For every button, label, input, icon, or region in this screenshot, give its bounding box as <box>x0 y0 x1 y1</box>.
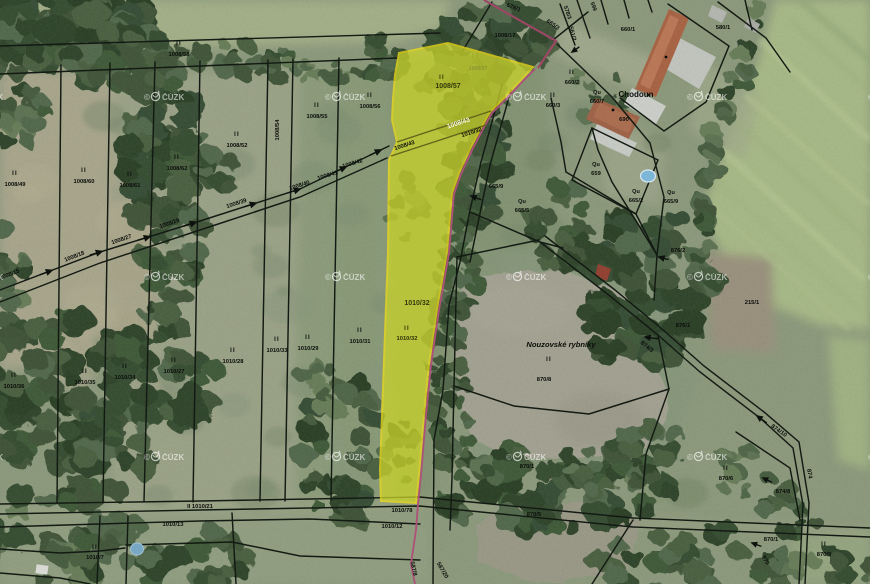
svg-text:©: © <box>144 453 150 462</box>
svg-text:1010/7: 1010/7 <box>86 555 104 561</box>
svg-text:ČÚZK: ČÚZK <box>0 93 3 102</box>
svg-text:660/3: 660/3 <box>546 103 561 109</box>
svg-text:Qu: Qu <box>667 190 675 196</box>
svg-text:1010/78: 1010/78 <box>392 508 414 514</box>
svg-text:1010/27: 1010/27 <box>164 369 185 375</box>
svg-text:690: 690 <box>619 117 629 123</box>
svg-text:II: II <box>92 545 98 551</box>
svg-text:ČÚZK: ČÚZK <box>705 453 727 462</box>
svg-text:1008/56: 1008/56 <box>360 104 382 110</box>
svg-text:1008/61: 1008/61 <box>120 183 142 189</box>
svg-text:876/2: 876/2 <box>671 248 686 254</box>
svg-text:870/6: 870/6 <box>719 476 734 482</box>
svg-text:1008/57: 1008/57 <box>435 83 460 90</box>
svg-text:Qu: Qu <box>518 199 526 205</box>
svg-text:665/5: 665/5 <box>515 208 530 214</box>
svg-text:©: © <box>325 93 331 102</box>
svg-text:870/5: 870/5 <box>527 512 542 518</box>
svg-text:1008/17: 1008/17 <box>495 33 516 39</box>
svg-text:1010/32: 1010/32 <box>397 336 418 342</box>
svg-text:870/9: 870/9 <box>817 552 832 558</box>
svg-text:580/1: 580/1 <box>716 25 731 31</box>
svg-text:660/7: 660/7 <box>590 99 605 105</box>
svg-text:ČÚZK: ČÚZK <box>0 453 3 462</box>
svg-text:©: © <box>506 453 512 462</box>
svg-text:1008/62: 1008/62 <box>167 166 188 172</box>
svg-text:ČÚZK: ČÚZK <box>705 273 727 282</box>
svg-text:II 1010/21: II 1010/21 <box>187 504 214 510</box>
svg-text:1010/29: 1010/29 <box>298 346 320 352</box>
svg-text:II: II <box>11 373 17 379</box>
svg-text:870/8: 870/8 <box>537 377 552 383</box>
svg-text:II: II <box>127 172 133 178</box>
svg-text:Nouzovské rybníky: Nouzovské rybníky <box>526 340 596 349</box>
svg-text:ČÚZK: ČÚZK <box>524 273 546 282</box>
svg-text:II: II <box>550 93 556 99</box>
svg-text:II: II <box>314 103 320 109</box>
svg-text:870/1: 870/1 <box>520 464 535 470</box>
svg-text:II: II <box>569 70 575 76</box>
svg-text:II: II <box>122 364 128 370</box>
svg-text:II: II <box>234 132 240 138</box>
svg-text:1010/28: 1010/28 <box>223 359 245 365</box>
svg-text:II: II <box>274 337 280 343</box>
svg-text:II: II <box>546 357 552 363</box>
svg-text:1010/12: 1010/12 <box>382 524 403 530</box>
svg-text:Qu: Qu <box>632 189 640 195</box>
svg-text:II: II <box>723 466 729 472</box>
svg-text:II: II <box>82 369 88 375</box>
svg-text:ČÚZK: ČÚZK <box>705 93 727 102</box>
svg-text:659: 659 <box>591 171 601 177</box>
svg-text:1008/49: 1008/49 <box>5 182 27 188</box>
svg-text:II: II <box>357 328 363 334</box>
svg-text:665/9: 665/9 <box>489 184 504 190</box>
svg-text:II: II <box>821 542 827 548</box>
svg-text:©: © <box>506 93 512 102</box>
svg-text:1010/36: 1010/36 <box>4 384 26 390</box>
svg-text:II: II <box>176 41 182 47</box>
svg-text:1008/57: 1008/57 <box>469 66 488 72</box>
svg-text:1008/60: 1008/60 <box>74 179 95 185</box>
svg-text:ČÚZK: ČÚZK <box>343 453 365 462</box>
svg-text:II: II <box>367 93 373 99</box>
svg-text:1008/54: 1008/54 <box>275 119 281 141</box>
svg-text:ČÚZK: ČÚZK <box>343 93 365 102</box>
svg-text:ČÚZK: ČÚZK <box>162 93 184 102</box>
svg-text:1010/35: 1010/35 <box>75 380 97 386</box>
svg-text:ČÚZK: ČÚZK <box>0 273 3 282</box>
svg-text:660/1: 660/1 <box>621 27 636 33</box>
svg-text:©: © <box>144 93 150 102</box>
svg-text:©: © <box>144 273 150 282</box>
svg-text:©: © <box>506 273 512 282</box>
svg-text:665/9: 665/9 <box>664 199 679 205</box>
svg-text:876/1: 876/1 <box>676 323 691 329</box>
svg-text:©: © <box>687 453 693 462</box>
svg-text:©: © <box>687 93 693 102</box>
svg-text:II: II <box>174 155 180 161</box>
svg-text:1010/34: 1010/34 <box>115 375 137 381</box>
svg-text:II: II <box>305 335 311 341</box>
svg-text:ČÚZK: ČÚZK <box>162 273 184 282</box>
svg-text:II: II <box>12 171 18 177</box>
svg-text:1010/13: 1010/13 <box>163 522 185 528</box>
svg-text:©: © <box>325 453 331 462</box>
svg-text:ČÚZK: ČÚZK <box>524 453 546 462</box>
svg-text:ČÚZK: ČÚZK <box>524 93 546 102</box>
svg-text:1010/33: 1010/33 <box>267 348 289 354</box>
svg-text:660/2: 660/2 <box>565 80 580 86</box>
svg-text:©: © <box>687 273 693 282</box>
svg-text:215/1: 215/1 <box>745 300 760 306</box>
svg-text:Qu: Qu <box>592 162 600 168</box>
svg-text:874/8: 874/8 <box>776 489 791 495</box>
svg-text:II: II <box>439 75 445 81</box>
svg-text:ČÚZK: ČÚZK <box>162 453 184 462</box>
svg-text:1008/52: 1008/52 <box>227 143 248 149</box>
svg-text:Qu: Qu <box>593 90 601 96</box>
svg-text:©: © <box>325 273 331 282</box>
svg-text:665/2: 665/2 <box>629 198 644 204</box>
svg-text:1010/32: 1010/32 <box>404 300 429 307</box>
svg-text:II: II <box>171 358 177 364</box>
svg-text:870/1: 870/1 <box>764 537 779 543</box>
svg-text:II: II <box>404 326 410 332</box>
svg-text:ČÚZK: ČÚZK <box>343 273 365 282</box>
svg-text:1008/58: 1008/58 <box>169 52 191 58</box>
svg-text:II: II <box>81 168 87 174</box>
svg-text:1010/31: 1010/31 <box>350 339 372 345</box>
svg-text:1008/55: 1008/55 <box>307 114 329 120</box>
svg-text:II: II <box>230 348 236 354</box>
